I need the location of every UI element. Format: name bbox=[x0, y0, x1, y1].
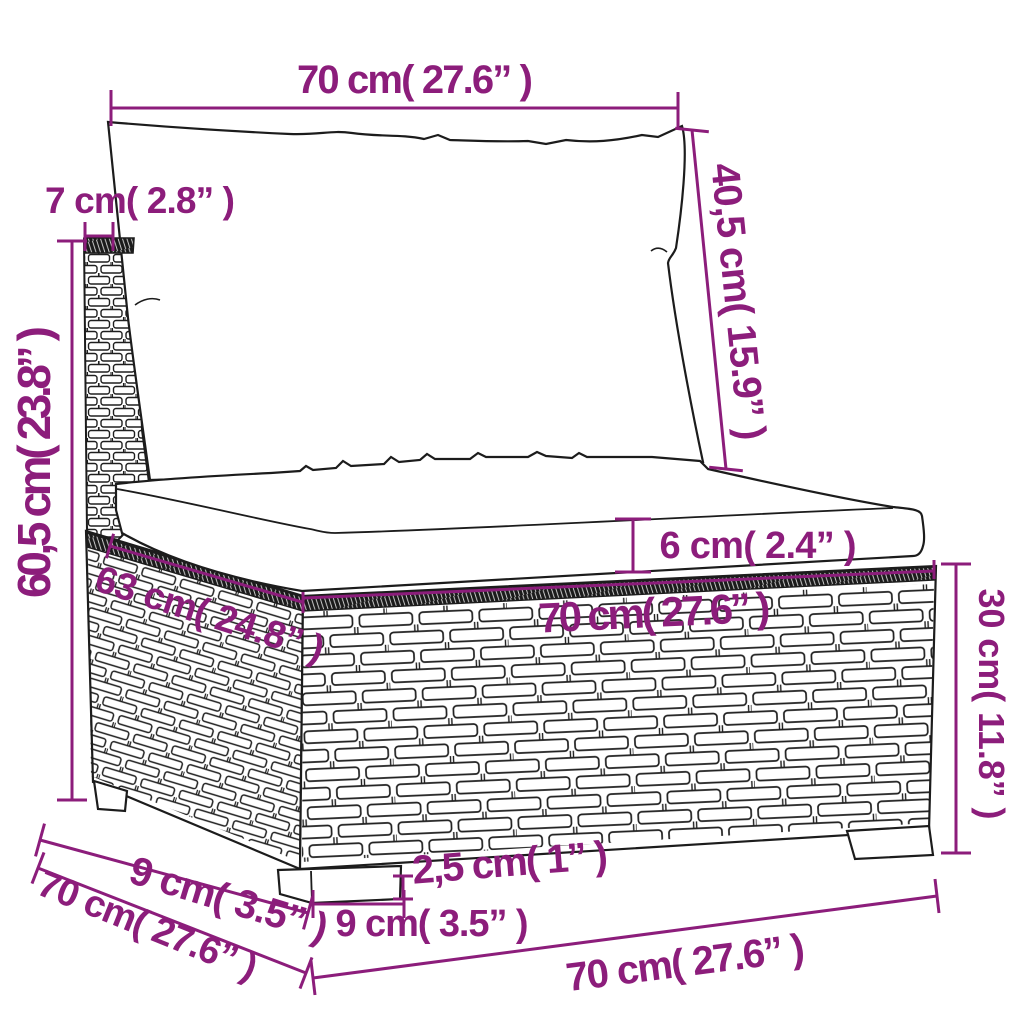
svg-text:6 cm( 2.4” ): 6 cm( 2.4” ) bbox=[660, 525, 857, 567]
svg-text:7 cm( 2.8” ): 7 cm( 2.8” ) bbox=[45, 180, 235, 221]
svg-text:70 cm( 27.6” ): 70 cm( 27.6” ) bbox=[297, 58, 533, 102]
svg-text:60,5 cm( 23.8” ): 60,5 cm( 23.8” ) bbox=[8, 326, 60, 598]
svg-text:30 cm( 11.8” ): 30 cm( 11.8” ) bbox=[971, 589, 1012, 820]
svg-text:9 cm( 3.5” ): 9 cm( 3.5” ) bbox=[336, 903, 529, 945]
